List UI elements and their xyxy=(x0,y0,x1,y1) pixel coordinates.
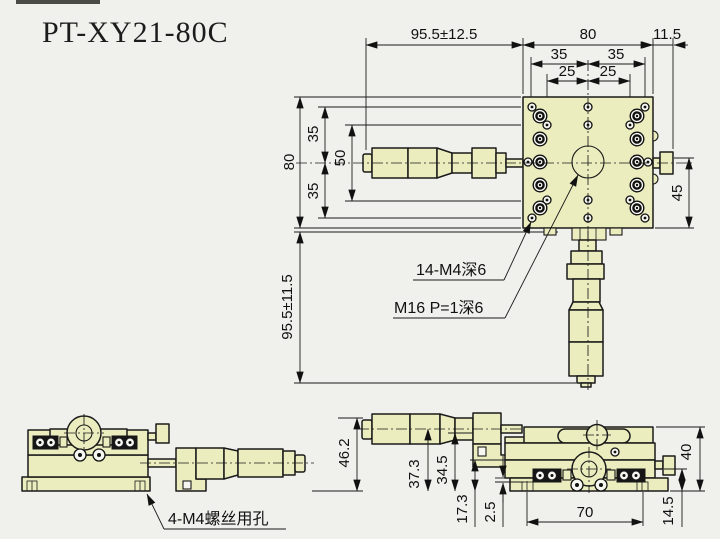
side-view: 37.3 34.5 17.3 2.5 70 14.5 40 xyxy=(358,413,705,527)
label-thread-holes: 14-M4深6 xyxy=(416,261,486,279)
lock-knob xyxy=(663,456,675,475)
dim-travel-y: 95.5±11.5 xyxy=(279,274,296,340)
label-mount-holes: 4-M4螺丝用孔 xyxy=(168,510,268,528)
dim-plate-height: 80 xyxy=(281,154,298,171)
dim-row35-top: 35 xyxy=(305,126,322,143)
label-center-thread: M16 P=1深6 xyxy=(394,299,483,317)
dim-25-left: 25 xyxy=(559,63,576,80)
dim-table-height: 17.3 xyxy=(454,494,471,523)
top-view: 95.5±12.5 80 11.5 35 35 25 25 80 35 50 3… xyxy=(279,26,694,390)
dim-front-height: 46.2 xyxy=(336,438,353,467)
lock-knob xyxy=(156,424,169,443)
dim-row50: 50 xyxy=(332,150,349,167)
dim-plate-width: 80 xyxy=(580,26,597,43)
front-view: 46.2 4-M4螺丝用孔 xyxy=(22,414,363,529)
side-view-body xyxy=(505,420,675,493)
front-view-body xyxy=(22,414,169,491)
lock-knob-stem xyxy=(655,461,663,469)
dim-row35-bottom: 35 xyxy=(305,183,322,200)
side-bump xyxy=(653,131,658,141)
screenshot-artifact xyxy=(16,0,100,4)
dim-center-height: 37.3 xyxy=(406,459,423,488)
lock-knob-stem xyxy=(148,433,156,440)
dim-body-height: 40 xyxy=(678,444,695,461)
dim-knob-side: 45 xyxy=(669,185,686,202)
dim-35-left: 35 xyxy=(551,46,568,63)
technical-drawing-page: PT-XY21-80C xyxy=(0,0,720,539)
drawing-title: PT-XY21-80C xyxy=(42,16,229,49)
side-bump xyxy=(653,174,658,184)
leader-thread-holes: 14-M4深6 xyxy=(413,222,531,280)
front-view-micrometer xyxy=(140,448,314,491)
dim-knob-height: 14.5 xyxy=(660,496,677,525)
y-micrometer xyxy=(544,228,622,387)
pt-xy21-80c-drawing: PT-XY21-80C xyxy=(0,0,720,539)
dim-35-right: 35 xyxy=(608,46,625,63)
dim-spindle-height: 34.5 xyxy=(434,455,451,484)
dim-travel-x: 95.5±12.5 xyxy=(411,26,478,43)
dim-knob-offset: 11.5 xyxy=(653,26,681,43)
dim-step: 2.5 xyxy=(482,502,499,523)
dim-25-right: 25 xyxy=(600,63,617,80)
dim-hole-span: 70 xyxy=(577,504,594,521)
